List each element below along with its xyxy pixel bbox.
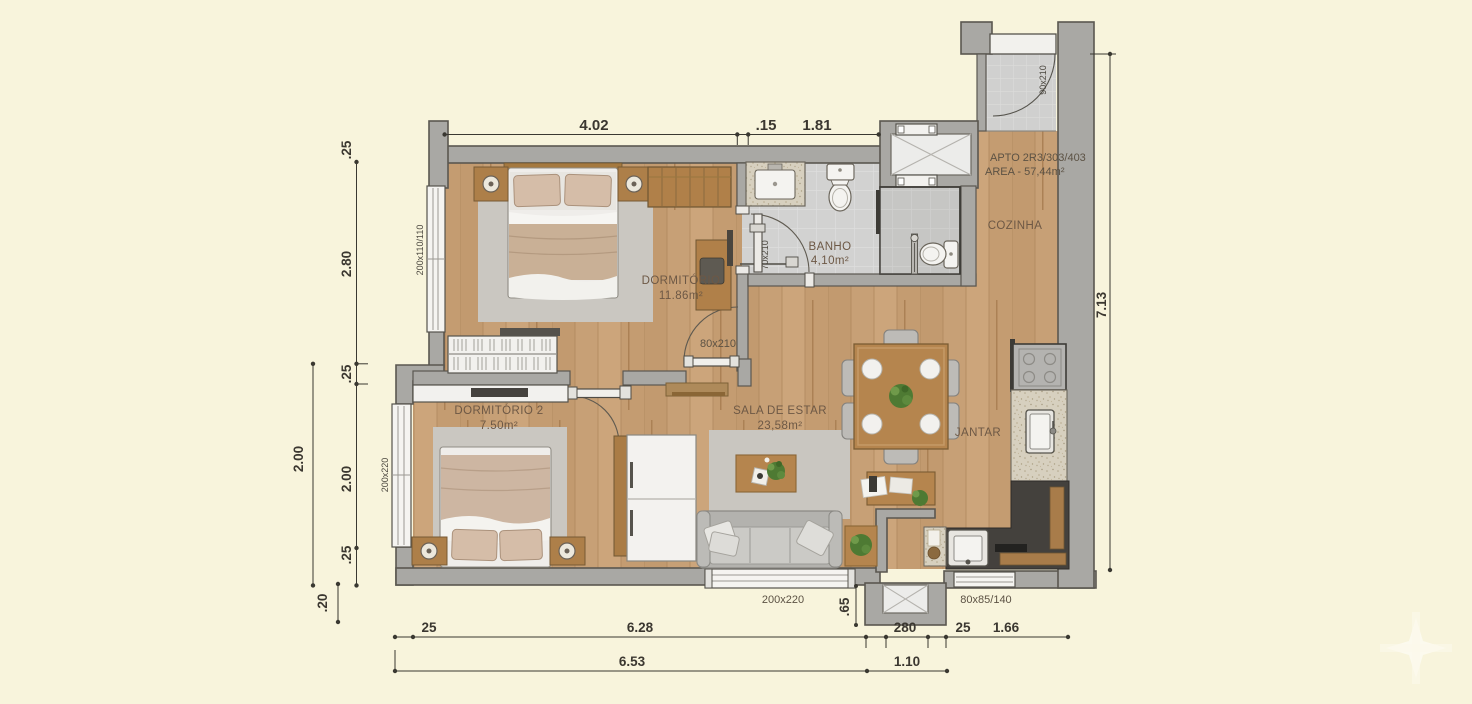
svg-text:.25: .25 <box>339 545 354 564</box>
svg-text:90x210: 90x210 <box>1038 65 1048 95</box>
svg-text:COZINHA: COZINHA <box>988 220 1043 232</box>
svg-text:.15: .15 <box>756 117 777 134</box>
svg-text:DORMITÓRIO 2: DORMITÓRIO 2 <box>454 404 543 417</box>
svg-text:7.13: 7.13 <box>1094 291 1109 318</box>
svg-text:25: 25 <box>421 620 437 635</box>
svg-text:AREA - 57,44m²: AREA - 57,44m² <box>985 166 1065 178</box>
svg-text:.25: .25 <box>339 364 354 383</box>
svg-text:25: 25 <box>955 620 971 635</box>
svg-text:200x110/110: 200x110/110 <box>415 225 425 276</box>
svg-text:1.66: 1.66 <box>993 620 1020 635</box>
svg-text:280: 280 <box>894 620 917 635</box>
svg-text:2.80: 2.80 <box>339 251 354 277</box>
svg-text:4.02: 4.02 <box>579 117 608 134</box>
svg-text:JANTAR: JANTAR <box>955 427 1001 439</box>
svg-text:80x210: 80x210 <box>700 338 736 350</box>
svg-text:7.50m²: 7.50m² <box>480 420 518 432</box>
svg-text:.65: .65 <box>837 597 852 616</box>
svg-text:4,10m²: 4,10m² <box>811 255 849 267</box>
svg-text:70x210: 70x210 <box>760 240 770 270</box>
svg-text:11.86m²: 11.86m² <box>659 290 703 302</box>
svg-text:6.28: 6.28 <box>627 620 654 635</box>
svg-text:2.00: 2.00 <box>291 446 306 472</box>
svg-text:.20: .20 <box>315 594 330 613</box>
svg-text:BANHO: BANHO <box>809 241 852 253</box>
svg-text:1.81: 1.81 <box>802 117 831 134</box>
svg-text:1.10: 1.10 <box>894 654 920 669</box>
svg-text:2.00: 2.00 <box>339 466 354 492</box>
svg-text:APTO 2R3/303/403: APTO 2R3/303/403 <box>990 152 1086 164</box>
svg-text:6.53: 6.53 <box>619 654 646 669</box>
svg-text:SALA DE ESTAR: SALA DE ESTAR <box>733 405 827 417</box>
svg-text:.25: .25 <box>339 140 354 159</box>
svg-text:23,58m²: 23,58m² <box>758 420 803 432</box>
svg-text:200x220: 200x220 <box>762 594 804 606</box>
svg-text:200x220: 200x220 <box>380 458 390 493</box>
svg-text:DORMITÓRIO: DORMITÓRIO <box>642 274 721 287</box>
svg-text:80x85/140: 80x85/140 <box>960 594 1011 606</box>
